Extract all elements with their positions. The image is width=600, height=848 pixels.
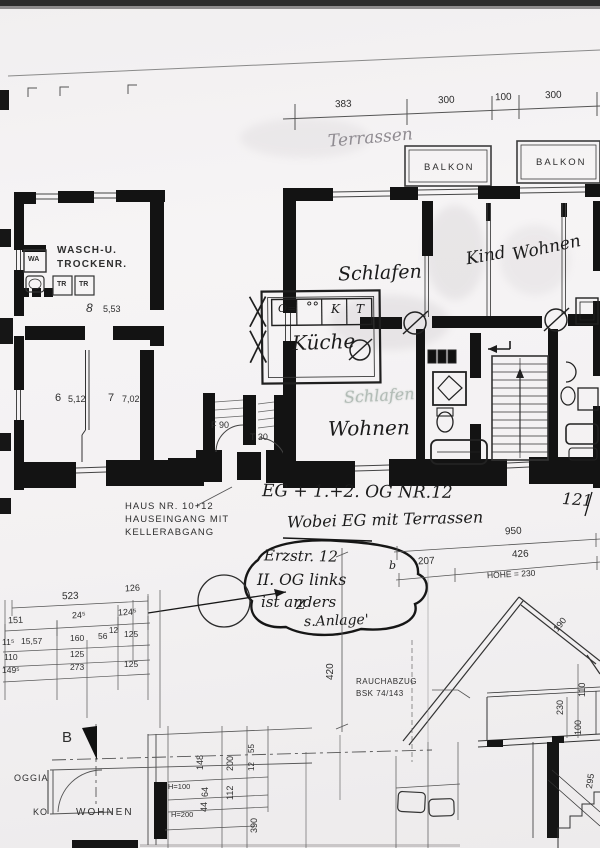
note-bubble-line4: s.Anlage'	[304, 613, 369, 630]
dim-160: 160	[70, 634, 84, 643]
room7-area: 7,02	[122, 395, 140, 404]
dim-426: 426	[512, 550, 529, 561]
rauchabzug-label: RAUCHABZUG	[356, 678, 417, 686]
dim-100s: 100	[574, 720, 583, 735]
room-label-schlafen: Schlafen	[338, 263, 422, 286]
room-label-schlafen-ghost: Schlafen	[344, 386, 415, 406]
room-label-wohnen-mid: Wohnen	[328, 417, 410, 439]
left-building-walls	[14, 190, 204, 490]
misc-b-mark: b	[389, 560, 396, 572]
door-f90-label: F 90	[211, 421, 229, 430]
tr-label-1: TR	[57, 281, 66, 288]
dim-523: 523	[62, 592, 79, 603]
dim-151: 151	[8, 616, 23, 626]
note-right-mark: 121	[561, 491, 593, 510]
dim-383: 383	[335, 100, 352, 111]
wasch-label-1: WASCH-U.	[57, 246, 117, 257]
dim-950: 950	[505, 527, 522, 538]
wasch-label-2: TROCKENR.	[57, 260, 127, 271]
dim-110s: 110	[578, 683, 587, 697]
dim-112: 112	[226, 786, 235, 800]
kitchen-cell-2: °°	[306, 301, 319, 315]
room-label-kueche: Küche	[292, 331, 356, 354]
loggia-label: OGGIA	[14, 774, 49, 783]
entrance-note-line3: KELLERABGANG	[125, 528, 214, 538]
kitchen-cell-1: O=	[278, 303, 296, 315]
room6-area: 5,12	[68, 395, 86, 404]
dim-148: 148	[196, 755, 205, 770]
room7-number: 7	[108, 393, 114, 405]
room6-number: 6	[55, 393, 61, 405]
dim-125a: 125	[124, 630, 138, 639]
dim-125c: 125	[124, 660, 138, 669]
dim-300a: 300	[438, 96, 455, 107]
roof-section	[403, 560, 600, 848]
staircase	[492, 356, 548, 460]
ko-label: KO	[33, 808, 48, 817]
dim-126: 126	[125, 583, 141, 593]
room8-area: 5,53	[103, 305, 121, 314]
note-title: EG + 1.+2. OG NR.12	[262, 483, 453, 503]
dim-110: 110	[4, 653, 18, 662]
h200-label: H=200	[171, 811, 193, 819]
dim-12: 12	[109, 627, 118, 635]
door-t30-label: T 30	[250, 433, 268, 442]
wa-label: WA	[28, 256, 39, 263]
dim-115: 11⁵	[2, 638, 14, 647]
dim-56: 56	[98, 632, 107, 641]
dim-44: 44	[200, 802, 209, 812]
dim-125b: 125	[70, 650, 84, 659]
entrance-note-line2: HAUSEINGANG MIT	[125, 515, 229, 525]
note-bubble-line1: Erzstr. 12	[264, 548, 338, 565]
plan-linework	[0, 0, 600, 848]
kitchen-cell-3: K	[331, 303, 340, 316]
tr-label-2: TR	[79, 281, 88, 288]
dim-55: 55	[248, 744, 256, 753]
dim-273: 273	[70, 663, 84, 672]
dim-420: 420	[326, 663, 337, 680]
note-bubble-line2: II. OG links	[257, 572, 346, 588]
scan-artifacts	[0, 0, 600, 848]
wohnen-bottom-label: WOHNEN	[76, 808, 134, 819]
balkon-label-2: BALKON	[536, 158, 587, 168]
dim-12b: 12	[248, 762, 256, 771]
room8-number: 8	[86, 302, 93, 315]
kitchen-cell-4: T	[356, 303, 364, 316]
dim-245: 24⁵	[72, 611, 86, 621]
scanned-floor-plan: 383 300 100 300 Terrassen BALKON BALKON …	[0, 0, 600, 848]
stair-direction-arrow-icon	[488, 341, 510, 353]
balkon-label-1: BALKON	[424, 163, 475, 173]
dim-1245: 124⁵	[118, 608, 137, 618]
dim-200b: 200	[226, 756, 235, 771]
note-bubble-z: Z	[296, 599, 305, 613]
door-symbol-icon	[349, 308, 569, 360]
section-marker-b: B	[62, 730, 72, 746]
dim-230s: 230	[556, 700, 565, 715]
dim-300b: 300	[545, 91, 562, 102]
dim-207: 207	[418, 557, 435, 568]
dim-1495: 149⁵	[2, 666, 20, 675]
dim-390: 390	[250, 818, 259, 833]
dim-100: 100	[495, 93, 512, 104]
dim-1557: 15,57	[21, 637, 42, 646]
bsk-label: BSK 74/143	[356, 690, 404, 698]
entrance-note-line1: HAUS NR. 10+12	[125, 502, 214, 512]
dim-64: 64	[201, 787, 210, 797]
h100-label: H=100	[168, 783, 190, 791]
